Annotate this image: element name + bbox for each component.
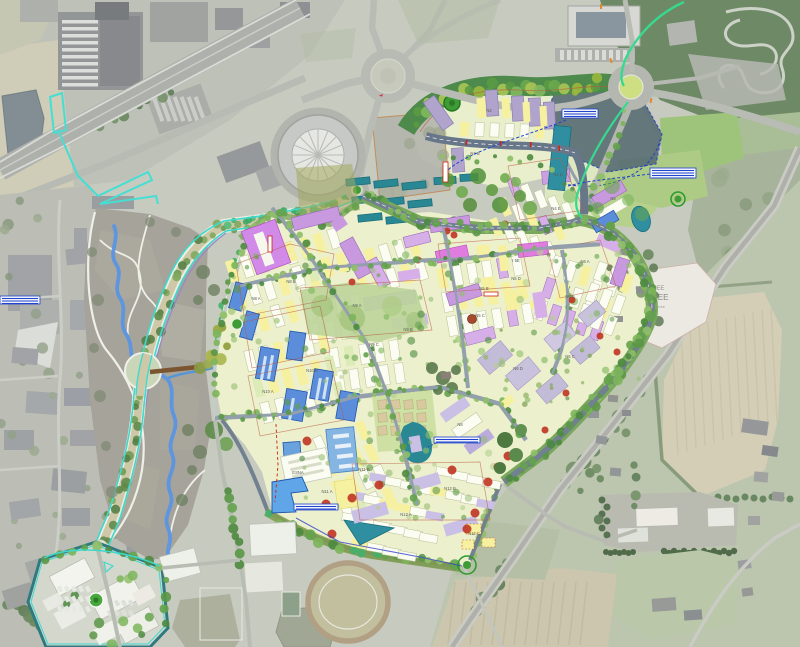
svg-text:N9 A: N9 A (352, 303, 361, 308)
svg-text:N8 A: N8 A (251, 296, 260, 301)
svg-text:N6 A: N6 A (580, 259, 589, 264)
svg-text:N4 E: N4 E (551, 206, 561, 211)
svg-text:N12 A: N12 A (400, 512, 412, 517)
svg-text:N5 A: N5 A (451, 258, 460, 263)
svg-text:N9 C: N9 C (369, 342, 379, 347)
svg-text:N12 C: N12 C (468, 531, 480, 536)
svg-text:N5 D: N5 D (511, 276, 521, 281)
svg-text:N5 B: N5 B (479, 286, 489, 291)
svg-text:N10 A: N10 A (262, 389, 274, 394)
svg-text:N5: N5 (610, 196, 616, 201)
svg-text:N5 C: N5 C (475, 313, 485, 318)
svg-text:N2: N2 (486, 108, 492, 113)
svg-text:N10 B: N10 B (306, 368, 318, 373)
svg-text:N8 B: N8 B (286, 279, 296, 284)
svg-text:ESNA: ESNA (292, 470, 304, 475)
svg-text:I 5E: I 5E (512, 258, 520, 263)
svg-text:N6 C: N6 C (565, 354, 575, 359)
svg-text:N12 B: N12 B (444, 486, 456, 491)
svg-text:N9 B: N9 B (403, 327, 413, 332)
svg-text:N11 B: N11 B (358, 467, 370, 472)
svg-text:N6 B: N6 B (565, 294, 575, 299)
svg-text:N8: N8 (457, 422, 463, 427)
svg-text:N4 D: N4 D (553, 172, 563, 177)
svg-text:N6 D: N6 D (513, 366, 523, 371)
svg-text:N11 A: N11 A (321, 489, 332, 494)
